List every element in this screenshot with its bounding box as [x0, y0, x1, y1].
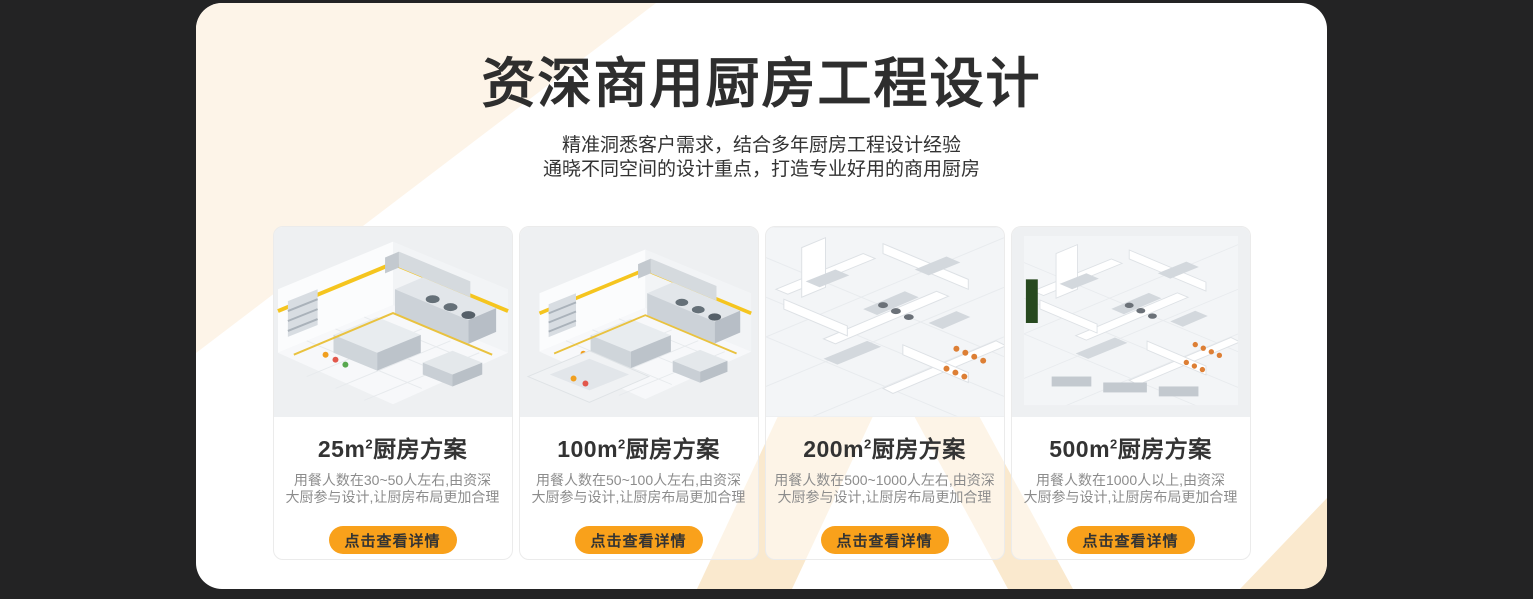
description-line-2: 大厨参与设计,让厨房布局更加合理 — [520, 489, 758, 506]
subtitle-line-2: 通晓不同空间的设计重点，打造专业好用的商用厨房 — [196, 158, 1327, 182]
plan-area-sup: 2 — [618, 436, 626, 451]
plan-title-suffix: 厨房方案 — [626, 436, 720, 462]
description-line-1: 用餐人数在30~50人左右,由资深 — [274, 472, 512, 489]
plan-card-description: 用餐人数在50~100人左右,由资深 大厨参与设计,让厨房布局更加合理 — [520, 472, 758, 506]
description-line-1: 用餐人数在500~1000人左右,由资深 — [766, 472, 1004, 489]
plan-area-sup: 2 — [1110, 436, 1118, 451]
plan-card-description: 用餐人数在500~1000人左右,由资深 大厨参与设计,让厨房布局更加合理 — [766, 472, 1004, 506]
plan-area: 100m — [557, 436, 618, 462]
plan-card-200m2: 200m2厨房方案 用餐人数在500~1000人左右,由资深 大厨参与设计,让厨… — [765, 226, 1005, 560]
plan-area-sup: 2 — [365, 436, 373, 451]
plan-card-25m2: 25m2厨房方案 用餐人数在30~50人左右,由资深 大厨参与设计,让厨房布局更… — [273, 226, 513, 560]
plan-title-suffix: 厨房方案 — [872, 436, 966, 462]
plan-card-title: 500m2厨房方案 — [1012, 430, 1250, 464]
plan-card-100m2: 100m2厨房方案 用餐人数在50~100人左右,由资深 大厨参与设计,让厨房布… — [519, 226, 759, 560]
plan-card-500m2: 500m2厨房方案 用餐人数在1000人以上,由资深 大厨参与设计,让厨房布局更… — [1011, 226, 1251, 560]
plan-card-description: 用餐人数在1000人以上,由资深 大厨参与设计,让厨房布局更加合理 — [1012, 472, 1250, 506]
kitchen-floorplan-render-500m2 — [1012, 227, 1250, 417]
detail-button-25m2[interactable]: 点击查看详情 — [329, 526, 457, 554]
description-line-1: 用餐人数在50~100人左右,由资深 — [520, 472, 758, 489]
plan-cards-row: 25m2厨房方案 用餐人数在30~50人左右,由资深 大厨参与设计,让厨房布局更… — [196, 226, 1327, 560]
description-line-2: 大厨参与设计,让厨房布局更加合理 — [274, 489, 512, 506]
plan-area: 500m — [1049, 436, 1110, 462]
kitchen-isometric-render-25m2 — [274, 227, 512, 417]
description-line-2: 大厨参与设计,让厨房布局更加合理 — [1012, 489, 1250, 506]
plan-area: 25m — [318, 436, 366, 462]
plan-card-description: 用餐人数在30~50人左右,由资深 大厨参与设计,让厨房布局更加合理 — [274, 472, 512, 506]
plan-area-sup: 2 — [864, 436, 872, 451]
kitchen-isometric-render-100m2 — [520, 227, 758, 417]
plan-area: 200m — [803, 436, 864, 462]
detail-button-100m2[interactable]: 点击查看详情 — [575, 526, 703, 554]
plan-card-title: 200m2厨房方案 — [766, 430, 1004, 464]
section-title: 资深商用厨房工程设计 — [196, 52, 1327, 116]
plan-card-title: 25m2厨房方案 — [274, 430, 512, 464]
kitchen-floorplan-render-200m2 — [766, 227, 1004, 417]
description-line-1: 用餐人数在1000人以上,由资深 — [1012, 472, 1250, 489]
detail-button-200m2[interactable]: 点击查看详情 — [821, 526, 949, 554]
content-panel: 资深商用厨房工程设计 精准洞悉客户需求，结合多年厨房工程设计经验 通晓不同空间的… — [196, 3, 1327, 589]
subtitle-line-1: 精准洞悉客户需求，结合多年厨房工程设计经验 — [196, 134, 1327, 158]
description-line-2: 大厨参与设计,让厨房布局更加合理 — [766, 489, 1004, 506]
plan-card-title: 100m2厨房方案 — [520, 430, 758, 464]
plan-title-suffix: 厨房方案 — [373, 436, 467, 462]
plan-title-suffix: 厨房方案 — [1118, 436, 1212, 462]
section-subtitle: 精准洞悉客户需求，结合多年厨房工程设计经验 通晓不同空间的设计重点，打造专业好用… — [196, 134, 1327, 182]
detail-button-500m2[interactable]: 点击查看详情 — [1067, 526, 1195, 554]
